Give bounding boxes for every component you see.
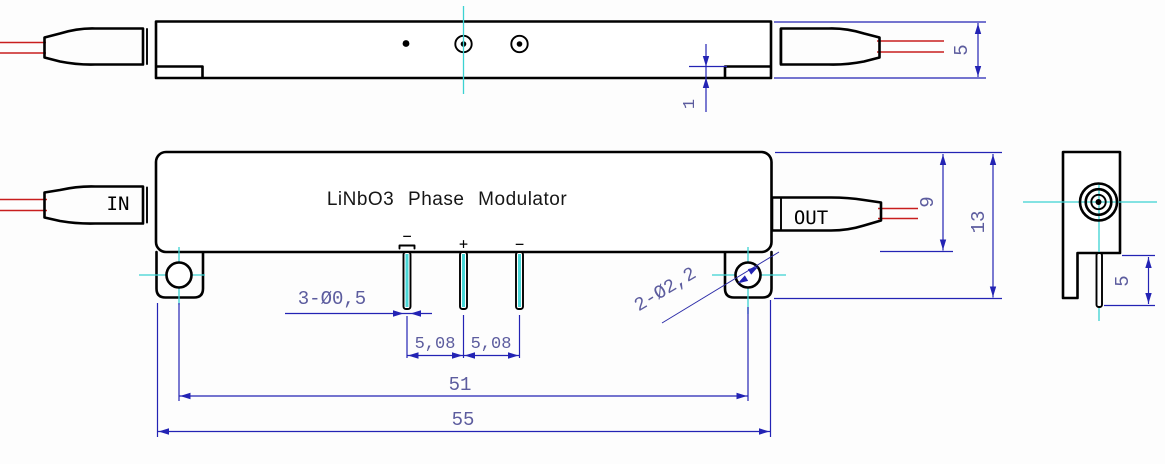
output-boot-top (781, 28, 880, 64)
pin-hole-dot (403, 40, 410, 47)
dimension-mount-hole-diameter: 2-Ø2,2 (630, 252, 779, 323)
pin-side-view (1097, 253, 1103, 307)
dim-label-hole-spacing: 51 (449, 374, 472, 396)
dim-label-mount-hole: 2-Ø2,2 (630, 263, 700, 317)
dimension-side-pin-length: 5 (1104, 256, 1155, 306)
dim-label-pin-diameter: 3-Ø0,5 (298, 288, 366, 310)
technical-drawing-canvas: 1 5 IN LiNbO3 Phase Modulator (0, 0, 1165, 464)
dim-label-pitch-1: 5,08 (415, 335, 456, 354)
front-view: IN LiNbO3 Phase Modulator OUT − (0, 152, 1002, 437)
dim-label-total-height: 13 (968, 211, 990, 234)
side-view: 5 (1023, 152, 1157, 321)
dim-label-total-length: 55 (452, 409, 475, 431)
dimension-pin-pitch: 5,08 5,08 (407, 315, 520, 359)
fiber-line-front-right (878, 209, 918, 219)
dim-label-thickness: 5 (951, 44, 973, 55)
fiber-line-top-right (877, 41, 944, 52)
dim-label-pitch-2: 5,08 (471, 335, 512, 354)
pin-2 (460, 252, 467, 309)
fiber-line-top-left (0, 43, 46, 54)
fiber-core-dot (1096, 199, 1102, 205)
mount-hole-right (736, 263, 761, 288)
phase-modulator-drawing: 1 5 IN LiNbO3 Phase Modulator (0, 0, 1165, 464)
dimension-body-height: 9 (775, 153, 1002, 252)
output-port-label: OUT (794, 207, 828, 229)
pin-1 (404, 252, 411, 309)
pin-3-polarity-label: − (515, 235, 524, 253)
device-title: LiNbO3 Phase Modulator (327, 189, 568, 210)
dim-label-step: 1 (681, 99, 700, 109)
input-boot-top (45, 28, 144, 64)
fiber-line-front-left (0, 200, 47, 211)
pin-2-polarity-label: + (459, 235, 468, 253)
dim-label-side-pin-length: 5 (1112, 275, 1134, 286)
dim-label-body-height: 9 (917, 196, 939, 207)
input-port-label: IN (107, 193, 130, 215)
mount-hole-left (167, 263, 192, 288)
pin-3 (516, 252, 523, 309)
top-view: 1 5 (0, 6, 986, 112)
pin-1-polarity-label: − (402, 227, 411, 245)
pin-hole-dot (517, 41, 523, 47)
